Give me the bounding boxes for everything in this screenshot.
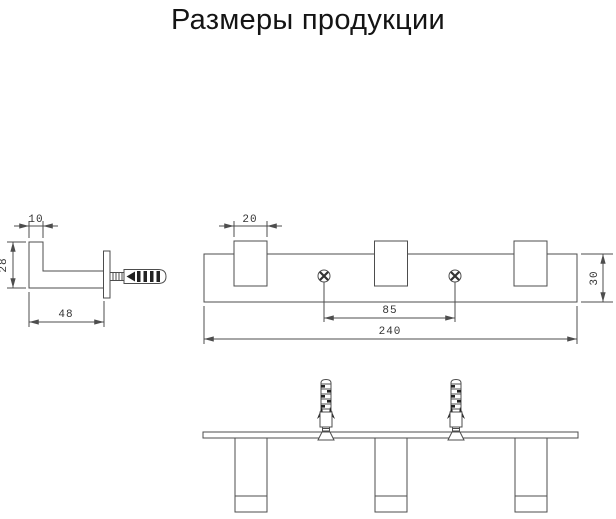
dim-label-20: 20 (242, 214, 257, 226)
dim-hook-top-width: 10 (14, 214, 58, 238)
dim-label-28: 28 (0, 257, 10, 272)
wall-plug-left (317, 380, 335, 441)
screw-left (318, 270, 330, 282)
rail-top-view (203, 432, 578, 438)
dim-rail-height: 30 (581, 254, 613, 302)
hook-profile (29, 242, 104, 288)
wall-plate (104, 251, 111, 298)
technical-drawing-page: Размеры продукции (0, 0, 616, 519)
dim-hook-width: 20 (219, 214, 282, 237)
wall-plug-right (447, 380, 465, 441)
bottom-hook-3 (515, 436, 547, 512)
dim-label-85: 85 (382, 305, 397, 317)
hook-2 (375, 241, 408, 286)
side-view-hook: 10 28 48 (0, 214, 166, 327)
dim-hook-depth: 48 (29, 292, 104, 327)
dim-label-48: 48 (58, 309, 73, 321)
front-view-rail: 20 85 240 30 (204, 214, 613, 344)
hook-1 (234, 241, 267, 286)
dim-label-240: 240 (379, 326, 402, 338)
bottom-hook-1 (235, 436, 267, 512)
hook-3 (514, 241, 547, 286)
dimension-drawing: 10 28 48 (0, 0, 616, 519)
dim-hook-height: 28 (0, 242, 26, 288)
dim-label-10: 10 (28, 214, 43, 226)
bottom-view (203, 380, 578, 513)
dim-label-30: 30 (589, 270, 601, 285)
bottom-hook-2 (375, 436, 407, 512)
screw-right (449, 270, 461, 282)
screw-shaft (110, 273, 124, 281)
wall-plug-side (124, 270, 166, 284)
